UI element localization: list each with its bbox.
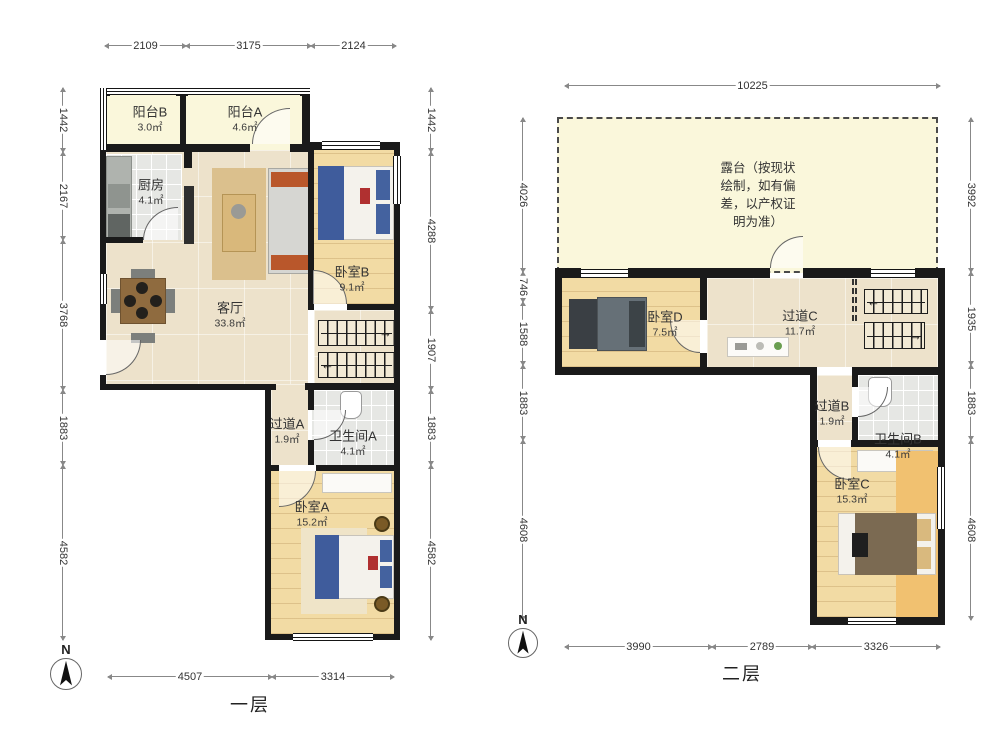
bed-b-blanket xyxy=(318,166,344,240)
dim-f1-left-1: 2167 xyxy=(62,152,63,240)
terrace-note: 露台（按现状 绘制，如有偏 差，以产权证 明为准） xyxy=(683,159,833,232)
window xyxy=(293,633,373,641)
bed-a-blanket xyxy=(315,535,339,599)
dim-f1-left-4: 4582 xyxy=(62,465,63,640)
wall xyxy=(308,440,314,465)
dim-f2-left-2: 1588 xyxy=(522,302,523,365)
compass-f2: N xyxy=(506,612,540,658)
dim-f1-left-3: 1883 xyxy=(62,390,63,465)
coffee-table xyxy=(222,194,256,252)
wall xyxy=(180,88,186,150)
dim-f2-left-1: 746 xyxy=(522,272,523,302)
stairs-f1-upper-flight: → xyxy=(318,320,395,346)
wall xyxy=(290,144,310,152)
stairs-f2-upper-flight: ← xyxy=(864,289,928,314)
room-label-balcony-b: 阳台B 3.0㎡ xyxy=(133,105,168,136)
wall xyxy=(810,440,818,447)
dim-f2-right-0: 3992 xyxy=(970,118,971,272)
wall xyxy=(308,384,314,410)
plate xyxy=(124,295,136,307)
compass-needle-icon xyxy=(509,629,537,657)
bed-b-pillow xyxy=(376,170,390,200)
room-label-hallway-c: 过道C 11.7㎡ xyxy=(782,309,817,340)
window xyxy=(100,88,310,95)
dim-f2-right-1: 1935 xyxy=(970,272,971,365)
floor1-caption: 一层 xyxy=(230,691,270,717)
wall xyxy=(100,384,276,390)
room-label-living-room: 客厅 33.8㎡ xyxy=(215,301,246,332)
wall xyxy=(308,304,314,310)
bed-b-throw xyxy=(360,188,370,204)
dim-f1-right-4: 4582 xyxy=(430,465,431,640)
window xyxy=(937,467,945,529)
room-label-bedroom-a: 卧室A 15.2㎡ xyxy=(295,500,330,531)
room-label-balcony-a: 阳台A 4.6㎡ xyxy=(228,105,263,136)
wall xyxy=(106,237,143,243)
plate xyxy=(136,282,148,294)
sofa-pillow xyxy=(271,172,309,187)
room-label-hallway-b: 过道B 1.9㎡ xyxy=(815,399,850,430)
wall xyxy=(394,142,400,640)
dim-f2-bottom-2: 3326 xyxy=(812,646,940,647)
floor2-plan: ← → 露台（按现状 绘制，如有偏 差，以产权证 明为准） 卧室D 7.5㎡ 过… xyxy=(555,115,945,625)
bed-a-pillow xyxy=(380,566,392,588)
tv-stand xyxy=(184,186,194,244)
dim-f1-top-1: 3175 xyxy=(186,45,311,46)
wall xyxy=(700,353,707,367)
nightstand xyxy=(374,516,390,532)
wall xyxy=(700,275,707,320)
dim-f1-bottom-0: 4507 xyxy=(108,676,272,677)
wall xyxy=(555,367,810,375)
dim-f1-left-2: 3768 xyxy=(62,240,63,390)
room-label-hallway-a: 过道A 1.9㎡ xyxy=(270,417,305,448)
window xyxy=(393,156,401,204)
desk-bedroom-d xyxy=(569,299,597,349)
bed-c-pillow xyxy=(917,547,931,569)
stair-arrow-icon: → xyxy=(379,326,392,339)
bed-a-throw xyxy=(368,556,378,570)
plate xyxy=(150,295,162,307)
dim-f2-left-0: 4026 xyxy=(522,118,523,272)
dim-f2-top-0: 10225 xyxy=(565,85,940,86)
nightstand xyxy=(374,596,390,612)
dim-f1-bottom-1: 3314 xyxy=(272,676,394,677)
plate xyxy=(136,307,148,319)
console-decor xyxy=(735,343,747,350)
room-label-bedroom-d: 卧室D 7.5㎡ xyxy=(647,310,682,341)
compass-north-label: N xyxy=(506,612,540,627)
room-label-bedroom-c: 卧室C 15.3㎡ xyxy=(834,477,869,508)
dim-f1-top-0: 2109 xyxy=(105,45,186,46)
bed-b-pillow xyxy=(376,204,390,234)
floorplan-canvas: → ← xyxy=(0,0,1000,750)
dim-f2-right-2: 1883 xyxy=(970,365,971,440)
wall xyxy=(555,268,562,375)
floor1-plan: → ← xyxy=(100,88,400,640)
compass-needle-icon xyxy=(51,659,81,689)
open-doorway-dashed xyxy=(852,279,857,321)
window xyxy=(581,269,628,278)
stair-arrow-icon: → xyxy=(909,328,922,341)
dining-chair xyxy=(165,289,175,313)
window xyxy=(871,269,915,278)
dim-f2-right-3: 4608 xyxy=(970,440,971,620)
dim-f1-right-1: 4288 xyxy=(430,152,431,310)
console-plant xyxy=(774,342,782,350)
compass-north-label: N xyxy=(48,642,84,657)
wall xyxy=(852,367,945,375)
console-decor xyxy=(756,342,764,350)
wall xyxy=(184,150,192,168)
wall xyxy=(852,375,858,387)
bed-d-pillow xyxy=(629,301,645,347)
sink xyxy=(108,214,130,238)
window xyxy=(848,617,896,625)
dim-f1-left-0: 1442 xyxy=(62,88,63,152)
bedroom-a-wardrobe xyxy=(322,473,392,493)
room-label-bathroom-b: 卫生间B 4.1㎡ xyxy=(874,432,922,463)
stair-arrow-icon: ← xyxy=(321,358,334,371)
stairs-f1-lower-flight: ← xyxy=(318,352,395,378)
window xyxy=(100,88,107,150)
dim-f1-right-2: 1907 xyxy=(430,310,431,390)
dim-f1-top-2: 2124 xyxy=(311,45,396,46)
wall xyxy=(555,268,581,278)
dim-f2-bottom-0: 3990 xyxy=(565,646,712,647)
wall xyxy=(852,417,858,440)
wall xyxy=(265,465,279,471)
room-label-kitchen: 厨房 4.1㎡ xyxy=(138,178,164,209)
dim-f1-right-3: 1883 xyxy=(430,390,431,465)
dim-f1-right-0: 1442 xyxy=(430,88,431,152)
wall xyxy=(305,383,400,390)
compass-dial-icon xyxy=(508,628,538,658)
bed-c-tv xyxy=(852,533,868,557)
wall xyxy=(803,268,871,278)
stairs-f2-lower-flight: → xyxy=(864,322,925,349)
dim-f2-left-3: 1883 xyxy=(522,365,523,440)
stair-arrow-icon: ← xyxy=(867,294,880,307)
wall xyxy=(347,304,400,310)
dim-f2-bottom-1: 2789 xyxy=(712,646,812,647)
compass-dial-icon xyxy=(50,658,82,690)
bed-a-pillow xyxy=(380,540,392,562)
room-label-bathroom-a: 卫生间A 4.1㎡ xyxy=(329,429,377,460)
stove xyxy=(108,184,130,208)
wall xyxy=(915,268,945,278)
wall xyxy=(628,268,770,278)
sofa-pillow xyxy=(271,255,309,270)
compass-f1: N xyxy=(48,642,84,690)
room-label-bedroom-b: 卧室B 9.1㎡ xyxy=(335,265,370,296)
floor2-caption: 二层 xyxy=(722,660,762,686)
window xyxy=(100,274,107,304)
bed-c-pillow xyxy=(917,519,931,541)
window xyxy=(322,141,380,150)
dim-f2-left-4: 4608 xyxy=(522,440,523,620)
wall xyxy=(316,465,400,471)
wall xyxy=(100,144,250,152)
table-decor xyxy=(231,204,246,219)
